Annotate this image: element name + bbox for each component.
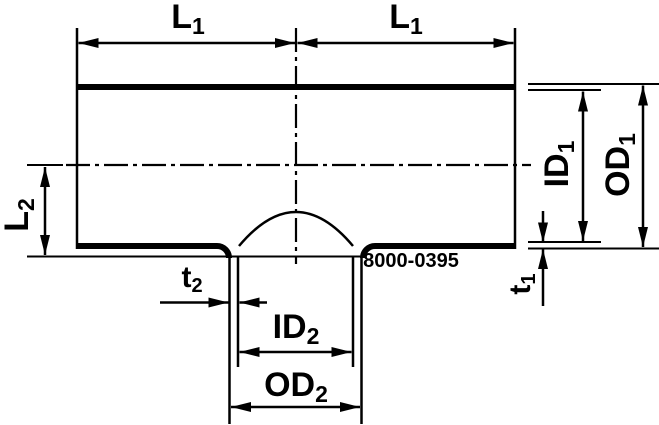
label-id2-base: ID [273, 308, 307, 346]
label-l1-left: L1 [171, 0, 205, 39]
label-t1: t1 [504, 273, 540, 294]
pipe-body [27, 28, 515, 424]
label-l1-left-subscript: 1 [192, 13, 205, 39]
technical-drawing-canvas: L1 L1 L2 ID1 OD1 t1 t2 ID2 OD2 8000-0395 [0, 0, 659, 425]
label-l1-right-base: L [389, 0, 410, 36]
centerlines [66, 28, 531, 264]
label-l2: L2 [0, 198, 39, 232]
label-od2: OD2 [264, 366, 328, 407]
label-t1-base: t [504, 285, 537, 295]
label-l1-left-base: L [171, 0, 192, 36]
label-od1: OD1 [599, 133, 640, 197]
label-t2-subscript: 2 [191, 275, 202, 297]
label-od1-subscript: 1 [614, 133, 640, 146]
label-t1-subscript: 1 [518, 273, 540, 284]
label-id2: ID2 [273, 308, 320, 349]
label-l2-subscript: 2 [13, 198, 39, 211]
dimension-labels: L1 L1 L2 ID1 OD1 t1 t2 ID2 OD2 8000-0395 [0, 0, 640, 407]
label-id1-subscript: 1 [553, 140, 579, 153]
label-t2-base: t [181, 261, 191, 294]
label-t2: t2 [181, 261, 202, 297]
dimension-lines [45, 43, 643, 407]
label-od2-base: OD [264, 366, 315, 404]
label-od2-subscript: 2 [315, 381, 328, 407]
label-l2-base: L [0, 211, 36, 232]
label-l1-right: L1 [389, 0, 423, 39]
label-od1-base: OD [599, 146, 637, 197]
label-id1: ID1 [538, 140, 579, 187]
label-l1-right-subscript: 1 [410, 13, 423, 39]
label-id1-base: ID [538, 153, 576, 187]
reducing-tee-fitting-diagram: L1 L1 L2 ID1 OD1 t1 t2 ID2 OD2 8000-0395 [0, 0, 659, 425]
part-number: 8000-0395 [363, 250, 459, 272]
label-id2-subscript: 2 [307, 323, 320, 349]
